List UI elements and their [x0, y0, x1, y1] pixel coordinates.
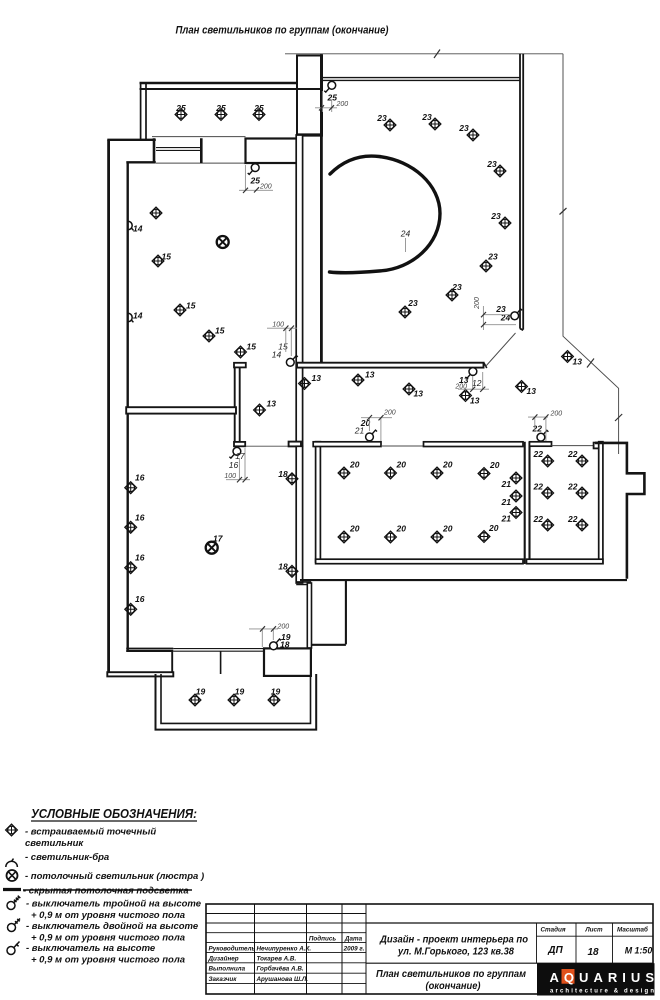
svg-text:Дата: Дата [344, 936, 363, 943]
svg-text:15: 15 [215, 326, 225, 336]
svg-text:100: 100 [224, 473, 236, 480]
svg-text:20: 20 [442, 524, 453, 534]
svg-text:- выключатель тройной на высот: - выключатель тройной на высоте [26, 899, 202, 910]
svg-text:20: 20 [488, 523, 499, 533]
svg-text:Токарев А.В.: Токарев А.В. [257, 956, 297, 963]
svg-text:14: 14 [133, 311, 143, 321]
svg-text:15: 15 [247, 342, 257, 352]
svg-text:- светильник-бра: - светильник-бра [25, 852, 109, 863]
svg-text:+ 0,9 м от уровня чистого пола: + 0,9 м от уровня чистого пола [31, 955, 185, 966]
svg-text:13: 13 [312, 373, 322, 383]
svg-text:18: 18 [587, 947, 599, 958]
svg-text:23: 23 [376, 113, 387, 123]
svg-text:Стадия: Стадия [540, 926, 565, 934]
svg-text:21: 21 [501, 479, 512, 489]
svg-text:200: 200 [277, 624, 290, 631]
svg-text:22: 22 [532, 424, 543, 434]
svg-text:Дизайн - проект интерьера по: Дизайн - проект интерьера по [379, 934, 528, 946]
svg-text:AQUARIUS: AQUARIUS [550, 970, 655, 985]
svg-text:Подпись: Подпись [309, 935, 336, 943]
svg-text:16: 16 [135, 594, 145, 604]
svg-text:22: 22 [533, 514, 544, 524]
svg-text:21: 21 [501, 497, 512, 507]
svg-text:16: 16 [135, 473, 145, 483]
svg-text:22: 22 [533, 449, 544, 459]
svg-text:200: 200 [550, 411, 563, 418]
svg-text:Выполнила: Выполнила [209, 966, 246, 973]
svg-text:17: 17 [213, 534, 224, 544]
svg-text:200: 200 [259, 184, 272, 191]
svg-text:13: 13 [470, 396, 480, 406]
svg-text:18: 18 [280, 640, 290, 650]
svg-text:16: 16 [229, 460, 239, 470]
svg-text:22: 22 [533, 482, 544, 492]
svg-text:15: 15 [186, 301, 196, 311]
svg-text:20: 20 [349, 524, 360, 534]
svg-text:ул. М.Горького, 123 кв.38: ул. М.Горького, 123 кв.38 [397, 946, 514, 958]
svg-text:14: 14 [133, 224, 143, 234]
svg-text:- выключатель на высоте: - выключатель на высоте [26, 943, 156, 954]
svg-text:23: 23 [458, 123, 469, 133]
svg-text:- потолочный светильник (люстр: - потолочный светильник (люстра ) [25, 871, 204, 882]
svg-text:23: 23 [451, 282, 462, 292]
svg-text:светильник: светильник [25, 838, 84, 849]
svg-text:- встраиваемый точечный: - встраиваемый точечный [25, 827, 156, 838]
svg-text:22: 22 [567, 449, 578, 459]
svg-text:15: 15 [162, 252, 172, 262]
svg-text:23: 23 [407, 298, 418, 308]
svg-text:18: 18 [278, 469, 288, 479]
svg-text:13: 13 [527, 386, 537, 396]
svg-text:20: 20 [349, 460, 360, 470]
svg-text:23: 23 [421, 112, 432, 122]
svg-text:23: 23 [490, 211, 501, 221]
svg-text:25: 25 [215, 103, 226, 113]
svg-text:Заказчик: Заказчик [209, 976, 238, 983]
svg-text:Горбачёва А.В.: Горбачёва А.В. [257, 965, 304, 973]
svg-text:Арушанова Ш.Л.: Арушанова Ш.Л. [256, 976, 309, 983]
svg-text:200: 200 [336, 101, 349, 108]
svg-text:200: 200 [383, 410, 396, 417]
svg-text:25: 25 [253, 103, 264, 113]
svg-text:200: 200 [474, 297, 481, 310]
svg-text:200: 200 [454, 384, 467, 391]
svg-text:13: 13 [365, 370, 375, 380]
svg-text:Масштаб: Масштаб [617, 926, 649, 934]
svg-text:21: 21 [501, 514, 512, 524]
svg-text:16: 16 [135, 513, 145, 523]
svg-text:УСЛОВНЫЕ ОБОЗНАЧЕНИЯ:: УСЛОВНЫЕ ОБОЗНАЧЕНИЯ: [31, 807, 197, 821]
svg-text:М 1:50: М 1:50 [625, 946, 653, 957]
svg-text:План светильников по группам (: План светильников по группам (окончание) [176, 25, 389, 37]
svg-text:Нечипуренко А.К.: Нечипуренко А.К. [257, 946, 312, 953]
svg-text:19: 19 [235, 687, 245, 697]
svg-text:100: 100 [272, 322, 284, 329]
svg-text:+ 0,9 м от уровня чистого пола: + 0,9 м от уровня чистого пола [31, 910, 185, 921]
svg-text:21: 21 [354, 426, 365, 436]
svg-text:23: 23 [486, 159, 497, 169]
svg-text:25: 25 [175, 103, 186, 113]
svg-text:20: 20 [489, 460, 500, 470]
svg-text:20: 20 [442, 460, 453, 470]
svg-text:25: 25 [250, 176, 261, 186]
svg-text:ДП: ДП [547, 945, 563, 956]
svg-text:13: 13 [414, 389, 424, 399]
svg-text:19: 19 [271, 687, 281, 697]
svg-text:22: 22 [567, 482, 578, 492]
svg-text:18: 18 [278, 562, 288, 572]
svg-text:13: 13 [573, 357, 583, 367]
svg-text:2009 г.: 2009 г. [343, 946, 365, 953]
svg-text:14: 14 [272, 350, 282, 360]
svg-text:13: 13 [267, 399, 277, 409]
svg-text:Лист: Лист [584, 927, 603, 934]
svg-text:12: 12 [472, 378, 482, 388]
svg-text:- скрытая потолочная подсветка: - скрытая потолочная подсветка [23, 886, 189, 897]
svg-text:План светильников по группам: План светильников по группам [376, 969, 527, 980]
svg-text:20: 20 [396, 524, 407, 534]
svg-text:Дизайнер: Дизайнер [208, 955, 239, 963]
svg-text:- выключатель двойной на высот: - выключатель двойной на высоте [26, 921, 199, 932]
svg-text:+ 0,9 м от уровня чистого пола: + 0,9 м от уровня чистого пола [31, 933, 185, 944]
svg-text:24: 24 [500, 313, 511, 323]
svg-text:(окончание): (окончание) [426, 981, 482, 992]
svg-text:23: 23 [487, 252, 498, 262]
svg-text:Руководитель: Руководитель [209, 945, 256, 953]
svg-text:19: 19 [196, 687, 206, 697]
svg-text:22: 22 [567, 514, 578, 524]
svg-text:16: 16 [135, 553, 145, 563]
svg-text:20: 20 [396, 460, 407, 470]
svg-text:24: 24 [400, 229, 411, 239]
